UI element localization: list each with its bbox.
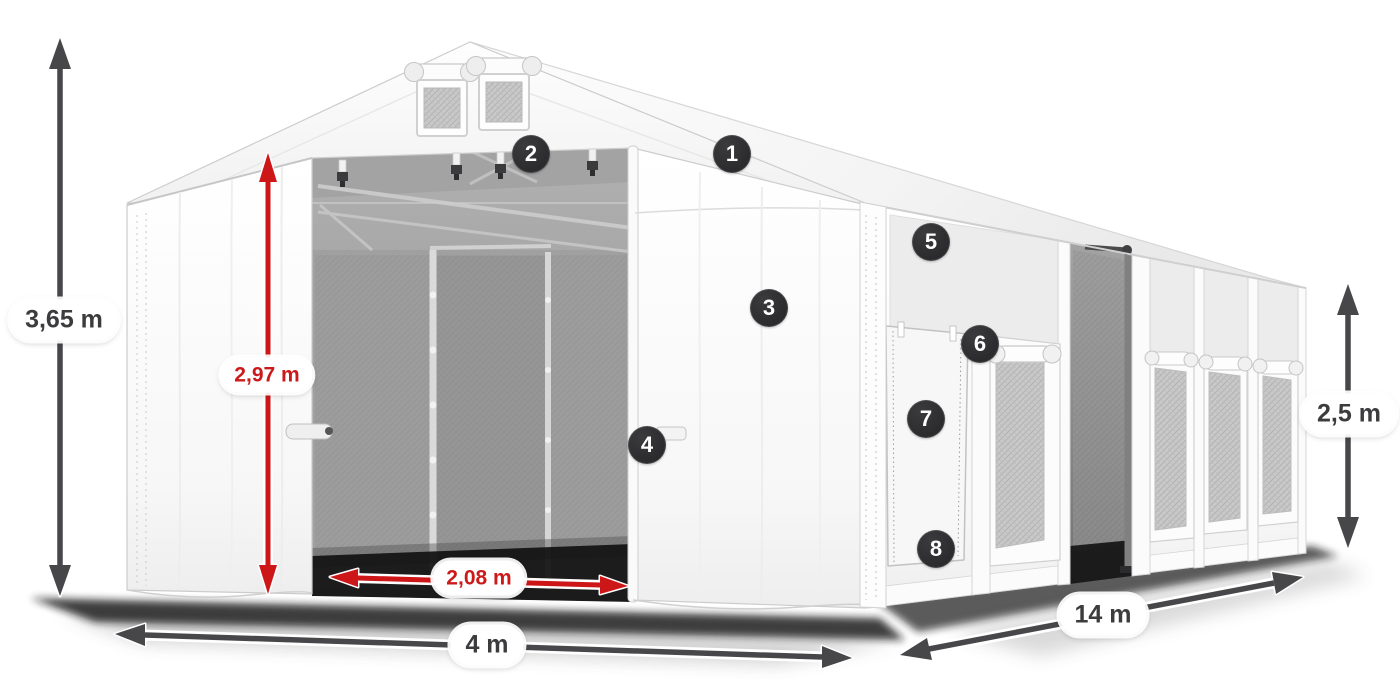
mesh-window-3 xyxy=(1199,355,1252,534)
corner-post xyxy=(860,202,886,608)
callout-badge-8: 8 xyxy=(917,530,955,568)
callout-badge-5: 5 xyxy=(912,223,950,261)
tent-illustration xyxy=(0,0,1400,700)
front-door-right xyxy=(628,146,868,609)
callout-badge-1: 1 xyxy=(713,135,751,173)
callout-badge-6: 6 xyxy=(961,325,999,363)
side-doorway-open xyxy=(1070,243,1136,584)
callout-badge-4: 4 xyxy=(628,426,666,464)
dimension-label-entrance-height: 2,97 m xyxy=(221,358,312,393)
mesh-window-4 xyxy=(1253,359,1303,526)
dimension-label-side-length: 14 m xyxy=(1060,595,1147,636)
callout-badge-3: 3 xyxy=(750,289,788,327)
dimension-label-side-wall-height: 2,5 m xyxy=(1302,394,1396,435)
entrance-interior xyxy=(308,138,638,608)
side-door-flap xyxy=(886,322,968,566)
callout-badge-7: 7 xyxy=(907,400,945,438)
mesh-window-2 xyxy=(1145,351,1198,542)
mesh-window-1 xyxy=(987,336,1061,566)
dimension-label-total-height: 3,65 m xyxy=(10,300,118,341)
skylight-panel-2 xyxy=(1150,258,1194,357)
dimension-label-entrance-width: 2,08 m xyxy=(433,561,524,596)
dimension-label-front-width: 4 m xyxy=(450,625,523,666)
callout-badge-2: 2 xyxy=(512,135,550,173)
tent-dimension-diagram: 3,65 m 2,97 m 2,08 m 4 m 14 m 2,5 m 1 2 … xyxy=(0,0,1400,700)
skylight-panel-3 xyxy=(1204,268,1248,363)
skylight-panel-4 xyxy=(1258,279,1298,367)
